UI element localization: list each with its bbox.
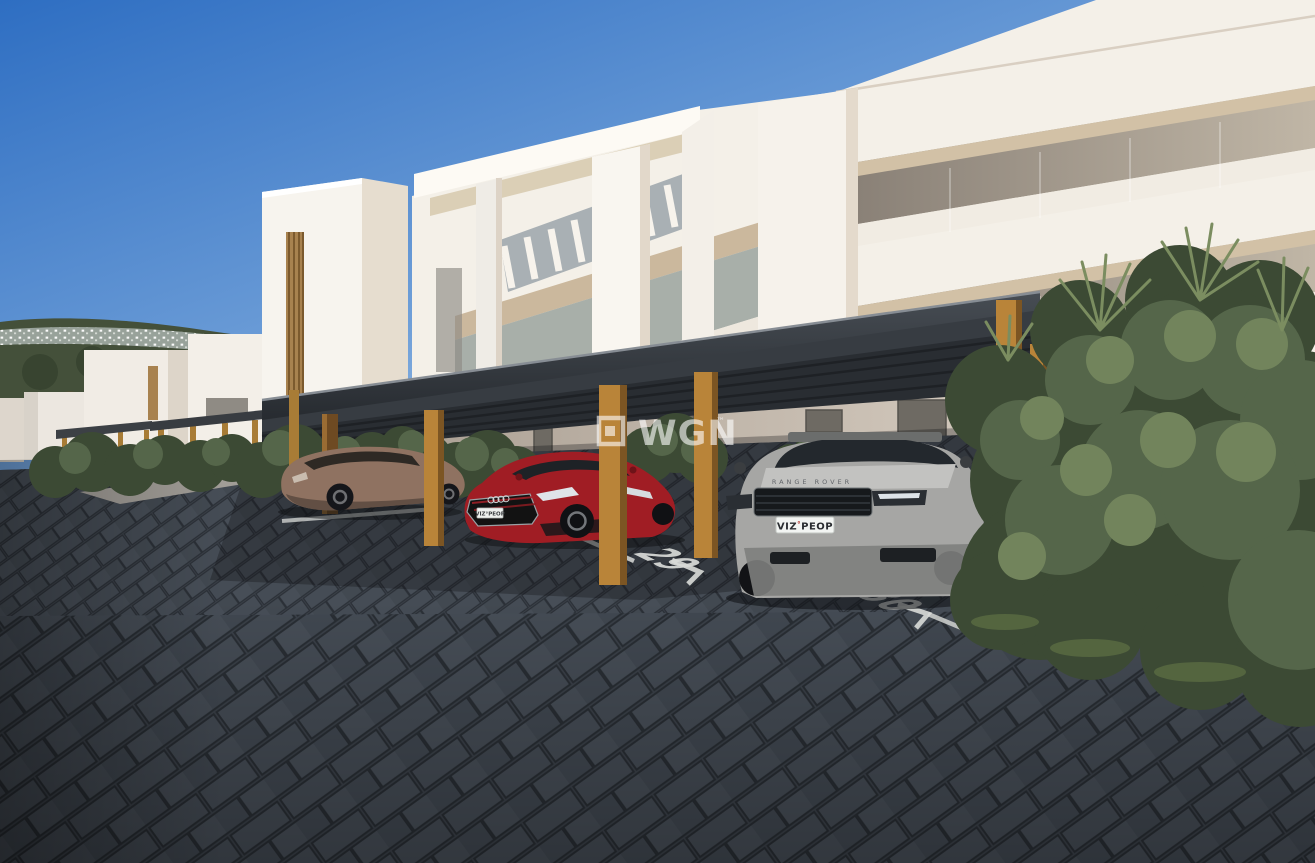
suv-headlight-right-drl <box>878 493 920 499</box>
suv-mirror <box>960 456 972 468</box>
plate-left: VIZ <box>777 522 797 533</box>
sedan-front-wheel <box>560 504 594 538</box>
architectural-render: 29 30 <box>0 0 1315 863</box>
sedan-rear-wheel <box>652 503 674 525</box>
suv-hood <box>760 464 956 490</box>
suv-headlight-left <box>726 494 752 510</box>
bg-house-1-shade <box>24 392 38 460</box>
column-d-shade <box>846 88 858 344</box>
left-end-window <box>436 268 462 372</box>
suv-mirror <box>734 462 746 474</box>
suv-plate-text: VIZ°PEOP <box>777 521 833 533</box>
plate-right: PEOP <box>801 522 833 533</box>
suv-fog-slot <box>880 548 936 562</box>
car-silver-suv: RANGE ROVER VIZ°PEOP <box>726 432 990 610</box>
sedan-mirror <box>516 474 523 481</box>
suv-fog-slot <box>770 552 810 564</box>
watermark-logo-inner-square <box>605 426 615 436</box>
suv-bumper <box>744 544 972 596</box>
sedan-mirror <box>630 467 637 474</box>
bg-house-2-louver <box>148 366 158 420</box>
hatchback-rear-wheel <box>327 484 354 511</box>
sedan-plate-text: VIZ°PEOP <box>475 512 505 518</box>
suv-hood-badge: RANGE ROVER <box>772 478 852 486</box>
bg-building-sliver <box>0 398 24 462</box>
watermark-trademark: ™ <box>716 417 725 427</box>
